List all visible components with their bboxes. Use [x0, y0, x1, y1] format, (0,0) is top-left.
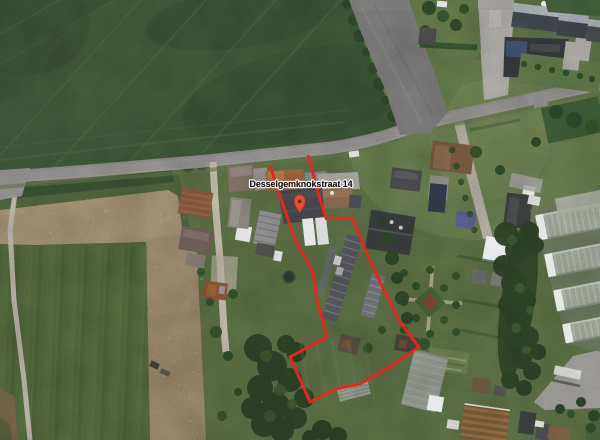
svg-text:Desselgemknokstraat 14: Desselgemknokstraat 14: [250, 179, 353, 189]
